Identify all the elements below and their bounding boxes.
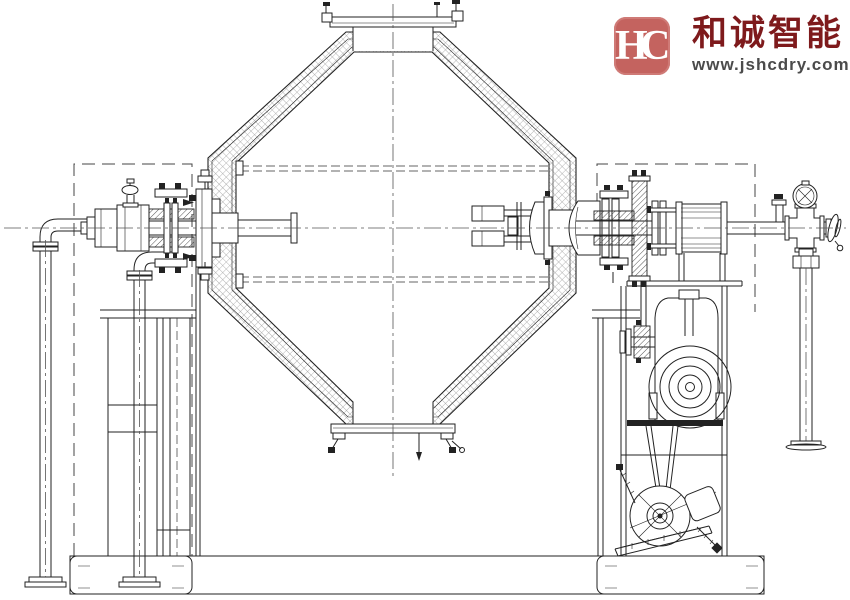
company-website: www.jshcdry.com	[692, 55, 850, 75]
hc-stamp-icon: HC	[614, 17, 670, 75]
v-belts	[646, 426, 678, 490]
base-frame	[70, 556, 764, 594]
drive-sprocket	[629, 170, 650, 287]
hand-valve	[824, 213, 843, 250]
logo: HC 和诚智能 www.jshcdry.com	[614, 14, 850, 80]
tension-screw-head	[711, 542, 722, 553]
internal-hidden-lines	[236, 161, 552, 288]
top-manhole	[322, 0, 463, 27]
right-foot-pad	[597, 556, 764, 594]
output-coupling	[634, 326, 650, 358]
left-piping	[25, 219, 175, 587]
joint-valve-handle	[122, 186, 138, 195]
drain-pipe	[786, 249, 826, 450]
engineering-drawing-page: HC 和诚智能 www.jshcdry.com	[0, 0, 850, 600]
stub-valve	[774, 194, 783, 199]
union-nut	[793, 256, 819, 268]
packing-gland	[148, 209, 194, 219]
bottom-discharge-valve	[328, 424, 465, 461]
gearbox	[620, 279, 731, 428]
dryer-elevation-drawing	[0, 0, 850, 600]
logo-monogram: HC	[615, 25, 669, 67]
left-support-column	[100, 262, 200, 556]
logo-text: 和诚智能 www.jshcdry.com	[692, 14, 850, 75]
pressure-gauge	[793, 181, 817, 208]
motor-assembly	[615, 426, 723, 556]
company-name: 和诚智能	[692, 14, 850, 54]
left-rotary-joint-assembly	[81, 170, 297, 280]
